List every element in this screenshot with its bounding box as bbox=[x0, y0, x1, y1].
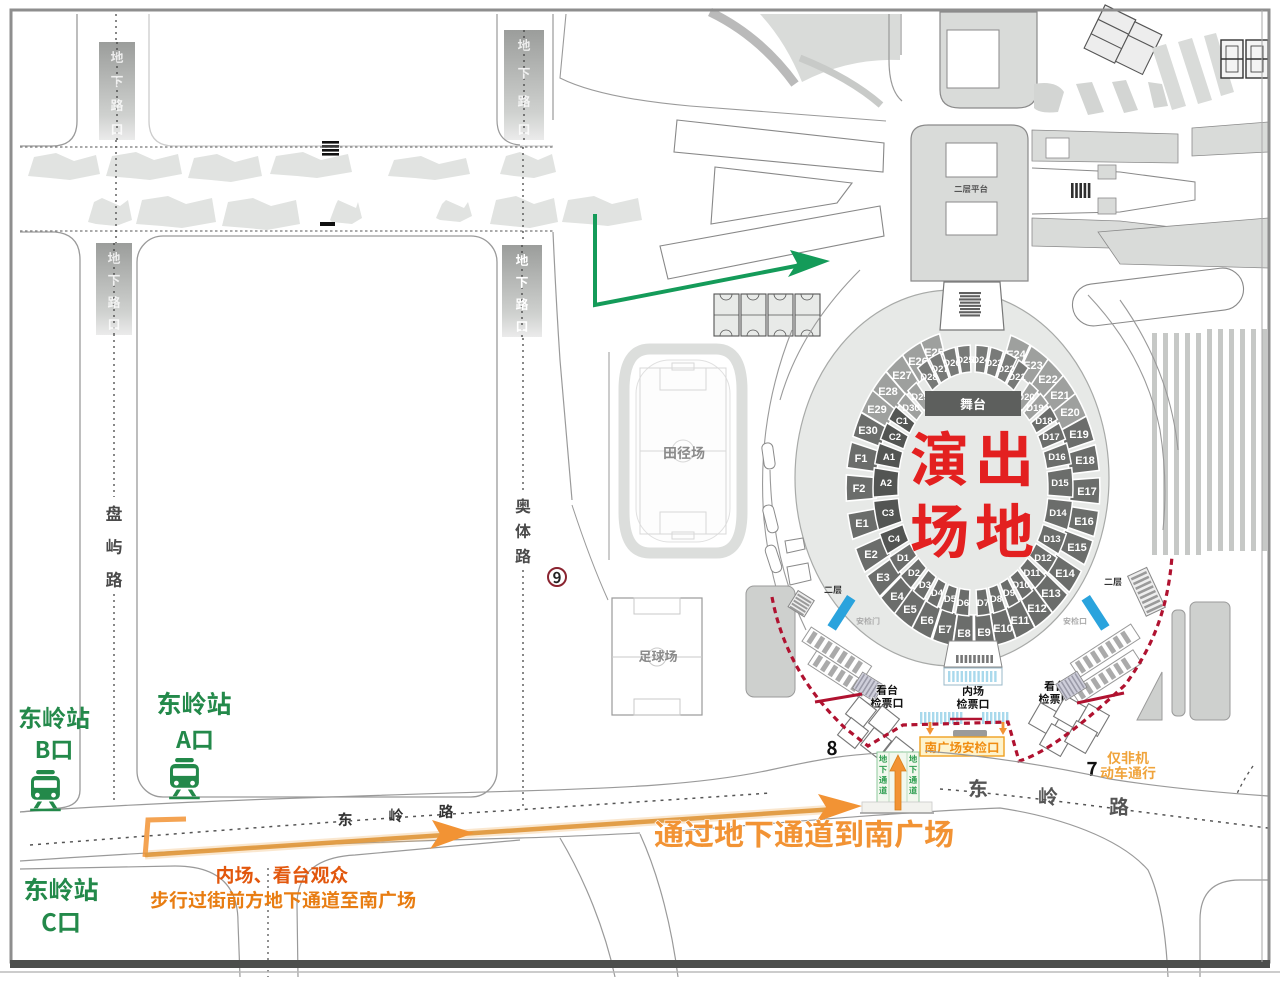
svg-text:C2: C2 bbox=[889, 432, 901, 443]
svg-text:E12: E12 bbox=[1027, 603, 1047, 615]
svg-text:E16: E16 bbox=[1074, 516, 1094, 528]
svg-text:D6: D6 bbox=[957, 598, 969, 609]
svg-text:D13: D13 bbox=[1043, 534, 1060, 545]
svg-text:D15: D15 bbox=[1051, 478, 1069, 489]
svg-text:C4: C4 bbox=[888, 534, 901, 545]
svg-text:C3: C3 bbox=[882, 508, 894, 519]
svg-text:F2: F2 bbox=[853, 483, 866, 495]
svg-text:E7: E7 bbox=[938, 624, 951, 636]
svg-text:D21: D21 bbox=[1008, 372, 1026, 383]
svg-text:E9: E9 bbox=[977, 627, 990, 639]
svg-text:E30: E30 bbox=[858, 425, 878, 437]
svg-text:E5: E5 bbox=[903, 604, 916, 616]
svg-text:E27: E27 bbox=[892, 370, 912, 382]
svg-text:D16: D16 bbox=[1048, 452, 1065, 463]
svg-text:E1: E1 bbox=[855, 518, 868, 530]
svg-text:E29: E29 bbox=[867, 404, 887, 416]
svg-text:D8: D8 bbox=[990, 594, 1002, 605]
svg-text:E8: E8 bbox=[957, 628, 970, 640]
svg-text:E20: E20 bbox=[1060, 407, 1080, 419]
svg-text:E28: E28 bbox=[878, 386, 898, 398]
svg-text:D28: D28 bbox=[920, 372, 937, 383]
svg-text:D5: D5 bbox=[944, 594, 957, 605]
svg-text:D9: D9 bbox=[1003, 588, 1015, 599]
svg-text:E18: E18 bbox=[1075, 455, 1095, 467]
svg-text:E15: E15 bbox=[1067, 542, 1087, 554]
svg-text:D7: D7 bbox=[977, 598, 989, 609]
svg-text:E19: E19 bbox=[1069, 429, 1089, 441]
svg-text:D14: D14 bbox=[1049, 508, 1067, 519]
svg-text:D2: D2 bbox=[908, 568, 920, 579]
svg-text:A2: A2 bbox=[880, 478, 892, 489]
svg-text:D12: D12 bbox=[1034, 553, 1051, 564]
svg-text:D30: D30 bbox=[902, 403, 919, 414]
svg-text:E2: E2 bbox=[864, 549, 877, 561]
svg-text:E6: E6 bbox=[920, 615, 933, 627]
svg-text:E17: E17 bbox=[1077, 486, 1097, 498]
svg-text:D18: D18 bbox=[1035, 416, 1052, 427]
svg-text:E3: E3 bbox=[876, 572, 889, 584]
svg-text:D4: D4 bbox=[931, 588, 944, 599]
svg-text:E11: E11 bbox=[1011, 615, 1030, 627]
svg-text:E13: E13 bbox=[1041, 588, 1061, 600]
svg-text:E10: E10 bbox=[993, 623, 1013, 635]
svg-text:D19: D19 bbox=[1026, 403, 1043, 414]
svg-text:D17: D17 bbox=[1042, 432, 1059, 443]
svg-text:C1: C1 bbox=[896, 416, 909, 427]
svg-text:E14: E14 bbox=[1055, 568, 1075, 580]
svg-text:D1: D1 bbox=[897, 553, 910, 564]
svg-text:D3: D3 bbox=[919, 580, 931, 591]
svg-text:A1: A1 bbox=[883, 452, 896, 463]
svg-text:F1: F1 bbox=[855, 453, 868, 465]
svg-text:D11: D11 bbox=[1024, 568, 1042, 579]
